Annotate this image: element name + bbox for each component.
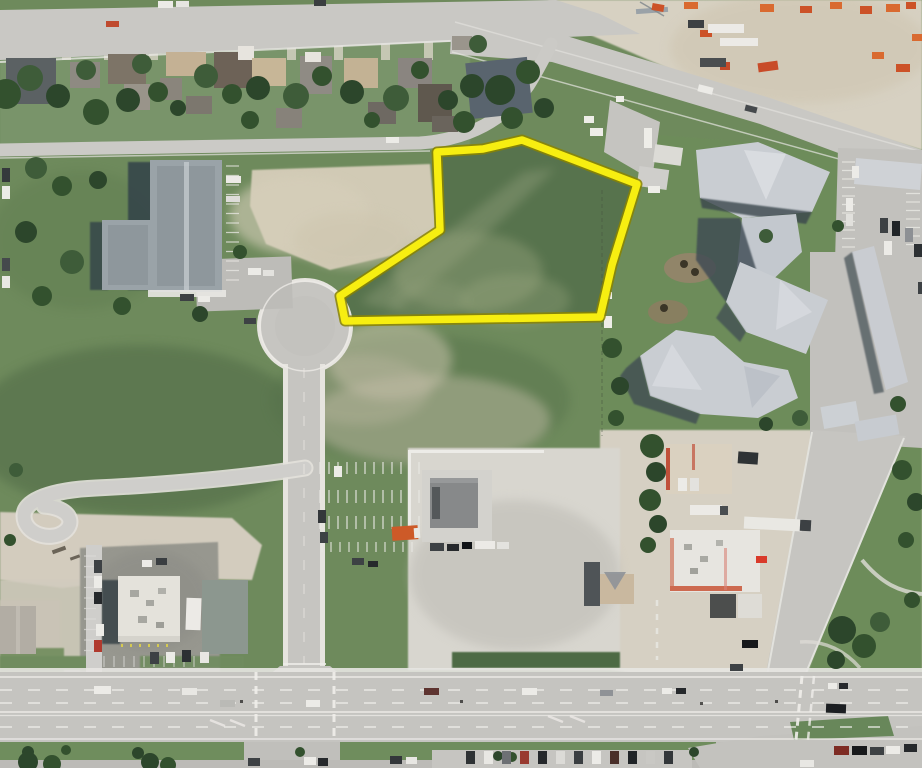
- car-dark: [182, 650, 191, 662]
- motel-wing-inner: [108, 225, 148, 285]
- parked-car: [556, 751, 565, 764]
- car-white: [690, 478, 699, 491]
- tree: [283, 83, 309, 109]
- tree: [608, 410, 624, 426]
- tan-commercial-red-trim: [692, 444, 695, 470]
- tree: [116, 88, 140, 112]
- parked-car: [304, 757, 316, 765]
- dark-canopy: [710, 594, 736, 618]
- center-building-edge: [430, 478, 478, 483]
- farm-equipment-orange: [760, 4, 774, 12]
- tree: [61, 745, 71, 755]
- car-white: [158, 1, 173, 8]
- car-white: [522, 688, 537, 695]
- garage-roof: [452, 36, 472, 50]
- rooftop-unit: [158, 588, 166, 594]
- tree: [9, 463, 23, 477]
- farm-equipment-orange: [684, 2, 698, 9]
- car-gray: [905, 228, 913, 242]
- parked-car: [852, 746, 867, 755]
- box-truck-white: [690, 505, 722, 515]
- car-white: [846, 214, 853, 226]
- parked-car: [646, 751, 655, 764]
- rooftop-unit: [146, 600, 154, 606]
- tree: [76, 60, 96, 80]
- parked-car: [664, 751, 673, 764]
- white-trailer: [644, 128, 652, 148]
- utility-pole: [775, 700, 778, 703]
- car-white: [198, 296, 210, 302]
- main-commercial-trim-inner: [724, 548, 727, 590]
- house-roof: [276, 108, 302, 128]
- car-black: [742, 640, 758, 648]
- parked-car: [248, 758, 260, 766]
- car-white: [200, 652, 209, 663]
- tree: [364, 112, 380, 128]
- farm-equipment-orange: [800, 6, 812, 13]
- tree: [832, 220, 844, 232]
- car-dark: [156, 558, 167, 565]
- tree: [660, 304, 668, 312]
- car-white: [386, 137, 399, 143]
- pad-wall-west: [408, 450, 411, 528]
- truck-dark: [738, 451, 759, 464]
- tree: [485, 75, 515, 105]
- tree: [649, 515, 667, 533]
- shoulder-grass: [0, 656, 92, 670]
- tree: [680, 260, 688, 268]
- car-black: [94, 592, 102, 604]
- tree: [852, 634, 876, 658]
- car-black: [676, 688, 686, 694]
- tree: [890, 396, 906, 412]
- white-trailer: [584, 116, 594, 123]
- highway: [0, 672, 922, 742]
- car-dark: [150, 652, 159, 664]
- tree: [60, 250, 84, 274]
- house-roof-white: [238, 46, 254, 60]
- tree: [194, 64, 218, 88]
- car-dark: [314, 0, 326, 6]
- car-gray: [600, 690, 613, 696]
- car-white: [334, 466, 342, 477]
- tree: [898, 532, 914, 548]
- tree: [340, 80, 364, 104]
- tree: [52, 176, 72, 196]
- tree: [827, 651, 845, 669]
- restaurant-roof: [118, 576, 180, 642]
- parked-car: [484, 751, 493, 764]
- car-dark: [318, 510, 326, 523]
- tree: [233, 245, 247, 259]
- retail-building-roof: [202, 580, 248, 654]
- main-commercial-trim-west: [670, 538, 674, 590]
- tree: [46, 84, 70, 108]
- rooftop-unit: [684, 544, 692, 550]
- tree: [89, 171, 107, 189]
- tree: [602, 338, 622, 358]
- parked-car: [466, 751, 475, 764]
- utility-pole: [460, 700, 463, 703]
- white-trailer: [616, 96, 624, 102]
- tree: [83, 99, 109, 125]
- tree: [759, 417, 773, 431]
- tree: [646, 462, 666, 482]
- tree: [640, 537, 656, 553]
- parked-car: [870, 747, 884, 755]
- tree: [241, 111, 259, 129]
- farm-equipment-orange: [872, 52, 884, 59]
- truck-maroon: [424, 688, 439, 695]
- corner-house-ridge: [16, 606, 20, 654]
- tree: [295, 747, 305, 757]
- restaurant-shadow: [102, 580, 120, 644]
- motel-ridge: [184, 162, 189, 290]
- tree: [132, 54, 152, 74]
- car-red: [106, 21, 119, 27]
- car-white: [94, 576, 102, 588]
- pad-wall-north: [408, 450, 544, 453]
- car-white: [142, 560, 152, 567]
- tree: [132, 747, 144, 759]
- tree: [691, 268, 699, 276]
- tree: [534, 98, 554, 118]
- car-white: [678, 478, 687, 491]
- tree: [892, 460, 912, 480]
- tree: [25, 157, 47, 179]
- rooftop-unit: [690, 568, 698, 574]
- shed-dark-roof: [584, 562, 600, 606]
- shed-roof: [186, 96, 212, 114]
- car-dark: [2, 168, 10, 182]
- parked-car: [800, 760, 814, 767]
- car-dark: [244, 318, 256, 324]
- car-red: [94, 640, 102, 652]
- tree: [17, 65, 43, 91]
- car-dark: [352, 558, 364, 565]
- car-white: [226, 176, 241, 183]
- car-white: [846, 198, 853, 211]
- tree: [469, 35, 487, 53]
- car-white: [94, 686, 111, 694]
- box-truck-cab: [720, 506, 728, 515]
- white-trailer: [648, 186, 660, 193]
- tree: [689, 747, 699, 757]
- bus-white: [475, 541, 495, 549]
- car-white: [2, 276, 10, 288]
- tree: [460, 74, 484, 98]
- tree: [870, 612, 890, 632]
- tree: [4, 534, 16, 546]
- car-white: [828, 683, 837, 689]
- parked-car: [406, 757, 417, 764]
- car-white: [226, 196, 240, 202]
- car-dark: [880, 218, 888, 233]
- farm-equipment-orange: [886, 4, 900, 12]
- tree: [113, 297, 131, 315]
- parked-car: [574, 751, 583, 764]
- car-dark: [180, 294, 194, 301]
- equipment-dark-truck: [700, 58, 726, 67]
- tree: [170, 100, 186, 116]
- car-gray: [220, 700, 235, 707]
- car-black: [892, 221, 900, 236]
- car-white: [2, 186, 10, 199]
- car-dark: [320, 532, 328, 543]
- tree: [453, 111, 475, 133]
- tree: [639, 489, 661, 511]
- aerial-photo-listing-image: [0, 0, 922, 768]
- farm-equipment-orange: [860, 6, 872, 14]
- car-white: [662, 688, 672, 694]
- rooftop-unit: [156, 622, 164, 628]
- rooftop-unit: [138, 616, 147, 623]
- car-dark: [918, 282, 922, 294]
- van-white: [185, 598, 201, 631]
- car-white: [248, 268, 261, 275]
- parked-car: [628, 751, 637, 764]
- car-white: [166, 652, 175, 663]
- tree: [759, 229, 773, 243]
- suv-black: [826, 704, 846, 714]
- restaurant-south-edge: [118, 636, 180, 642]
- parked-car: [318, 758, 328, 766]
- parked-car: [592, 751, 601, 764]
- highway-north-sidewalk: [0, 668, 922, 672]
- tree: [32, 286, 52, 306]
- light-pad: [738, 594, 762, 618]
- tree: [611, 377, 629, 395]
- rooftop-unit: [130, 590, 139, 597]
- tree: [438, 90, 458, 110]
- tree: [411, 61, 429, 79]
- parked-car: [520, 751, 529, 764]
- semi-cab-dark: [800, 520, 812, 532]
- hedge-strip: [452, 652, 620, 668]
- car-white: [182, 688, 197, 695]
- white-trailer: [590, 128, 603, 136]
- equipment-dark-truck: [688, 20, 704, 28]
- car-white: [497, 542, 509, 549]
- condo-mulch-bed: [648, 300, 688, 324]
- car-white: [306, 700, 320, 707]
- white-semi-trailer: [708, 24, 744, 33]
- tree: [15, 221, 37, 243]
- parked-car: [610, 751, 619, 764]
- tree: [904, 592, 920, 608]
- car-black: [839, 683, 848, 689]
- utility-pole: [700, 702, 703, 705]
- car-black: [447, 544, 459, 551]
- tree: [222, 84, 242, 104]
- car-white: [852, 166, 859, 178]
- car-black: [368, 561, 378, 567]
- tree: [246, 76, 270, 100]
- car-white: [96, 624, 104, 636]
- tree: [493, 751, 503, 761]
- orange-truck-cab: [414, 528, 421, 538]
- tree: [828, 616, 856, 644]
- rooftop-unit: [700, 556, 708, 562]
- white-semi-trailer: [720, 38, 758, 46]
- car-white: [176, 1, 189, 7]
- farm-equipment-orange: [912, 34, 922, 41]
- utility-pole: [240, 700, 243, 703]
- tan-commercial-red-trim: [666, 448, 670, 490]
- car-dark: [94, 560, 102, 573]
- main-commercial-trim-south: [670, 586, 742, 591]
- car-dark: [730, 664, 743, 671]
- tree: [501, 107, 523, 129]
- car-dark: [2, 258, 10, 271]
- farm-equipment-orange: [830, 2, 842, 9]
- parked-car: [834, 746, 849, 755]
- parked-car: [390, 756, 402, 764]
- aerial-satellite-view: [0, 0, 922, 768]
- parked-car: [538, 751, 547, 764]
- car-white: [263, 270, 274, 276]
- tree: [383, 85, 409, 111]
- tree: [192, 306, 208, 322]
- tree: [640, 434, 664, 458]
- red-sign: [756, 556, 767, 563]
- center-building-door: [432, 487, 440, 519]
- tree: [516, 60, 540, 84]
- farm-equipment-orange: [906, 2, 916, 9]
- house-roof-white: [305, 52, 321, 62]
- car-black: [462, 542, 472, 549]
- main-commercial-roof: [670, 530, 760, 592]
- tree: [148, 82, 168, 102]
- tree: [312, 66, 332, 86]
- car-white: [884, 241, 892, 255]
- tree: [792, 410, 808, 426]
- rooftop-unit: [716, 540, 723, 546]
- parked-car: [886, 746, 900, 754]
- parked-car: [502, 751, 511, 764]
- car-dark: [914, 244, 922, 257]
- parked-car: [904, 744, 917, 752]
- car-dark: [430, 543, 444, 551]
- farm-equipment-orange: [896, 64, 910, 72]
